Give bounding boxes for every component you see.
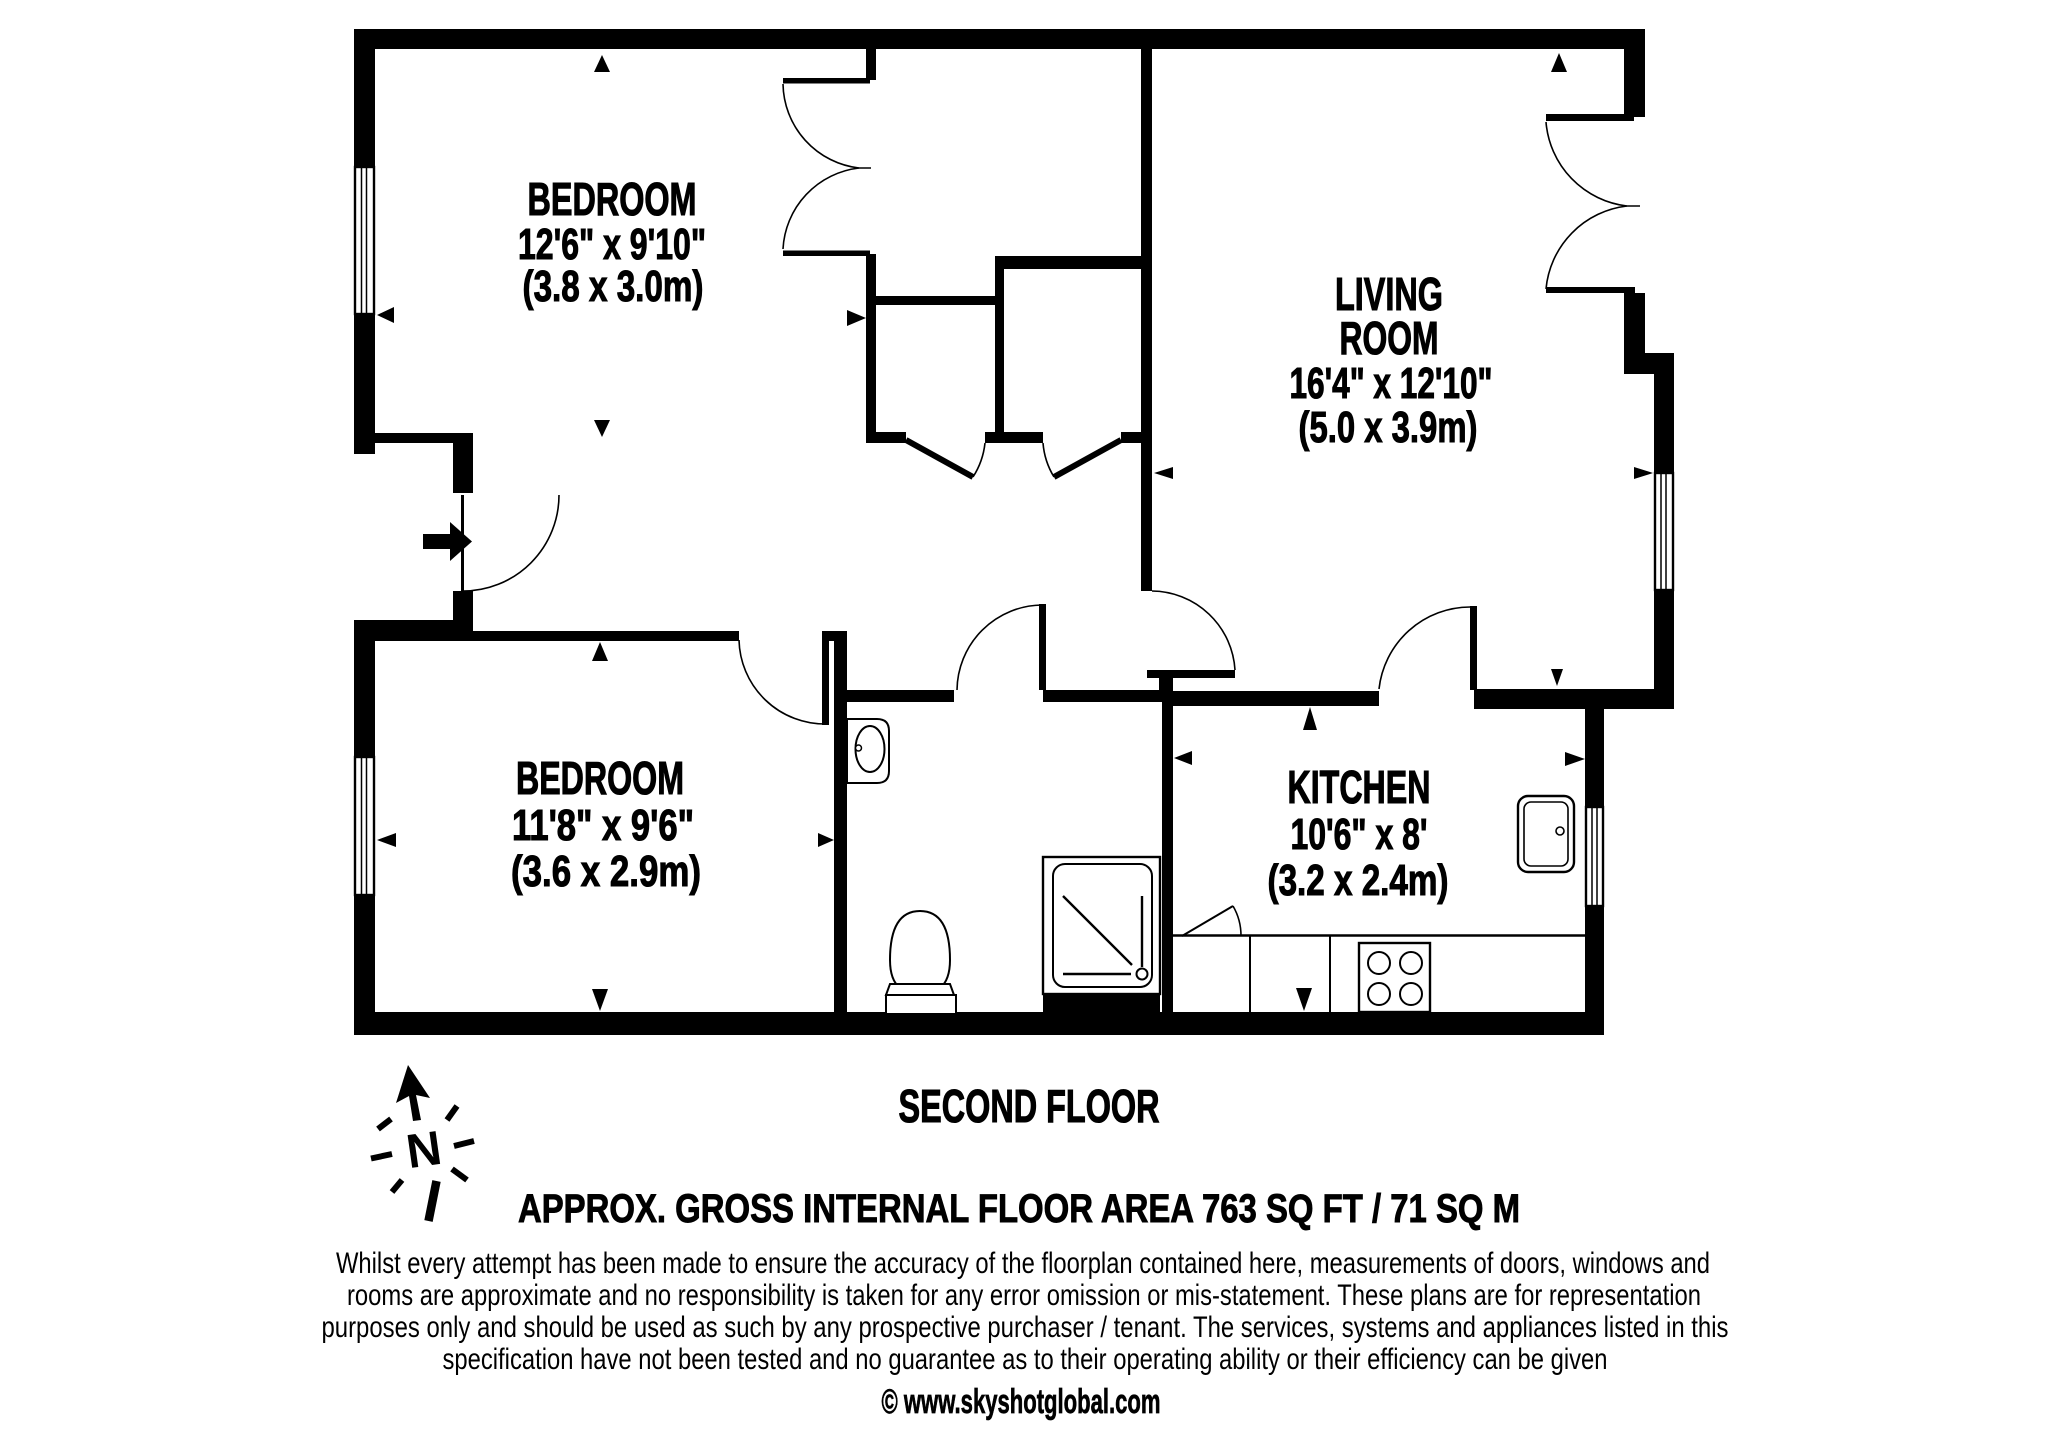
- svg-text:rooms are approximate and no r: rooms are approximate and no responsibil…: [347, 1279, 1701, 1312]
- svg-text:BEDROOM: BEDROOM: [516, 752, 684, 804]
- svg-text:10'6" x 8': 10'6" x 8': [1291, 810, 1428, 859]
- svg-text:purposes only and should be u: purposes only and should be used as such…: [322, 1311, 1729, 1344]
- svg-text:(3.8 x 3.0m): (3.8 x 3.0m): [523, 262, 704, 311]
- svg-text:KITCHEN: KITCHEN: [1288, 761, 1431, 813]
- svg-text:APPROX. GROSS INTERNAL FLOOR A: APPROX. GROSS INTERNAL FLOOR AREA 763 SQ…: [518, 1187, 1520, 1231]
- svg-text:16'4" x 12'10": 16'4" x 12'10": [1290, 359, 1493, 408]
- svg-text:© www.skyshotglobal.com: © www.skyshotglobal.com: [882, 1383, 1161, 1421]
- svg-text:BEDROOM: BEDROOM: [528, 173, 697, 225]
- svg-text:ROOM: ROOM: [1340, 312, 1439, 364]
- svg-text:Whilst every attempt has been: Whilst every attempt has been made to en…: [336, 1247, 1710, 1280]
- svg-text:(3.2 x 2.4m): (3.2 x 2.4m): [1268, 856, 1449, 905]
- svg-text:(5.0 x 3.9m): (5.0 x 3.9m): [1299, 403, 1478, 452]
- svg-text:N: N: [403, 1122, 445, 1179]
- svg-text:(3.6 x 2.9m): (3.6 x 2.9m): [511, 847, 701, 896]
- svg-text:11'8" x 9'6": 11'8" x 9'6": [512, 801, 694, 850]
- svg-text:specification have not been te: specification have not been tested and n…: [443, 1343, 1608, 1376]
- svg-text:SECOND FLOOR: SECOND FLOOR: [899, 1080, 1160, 1132]
